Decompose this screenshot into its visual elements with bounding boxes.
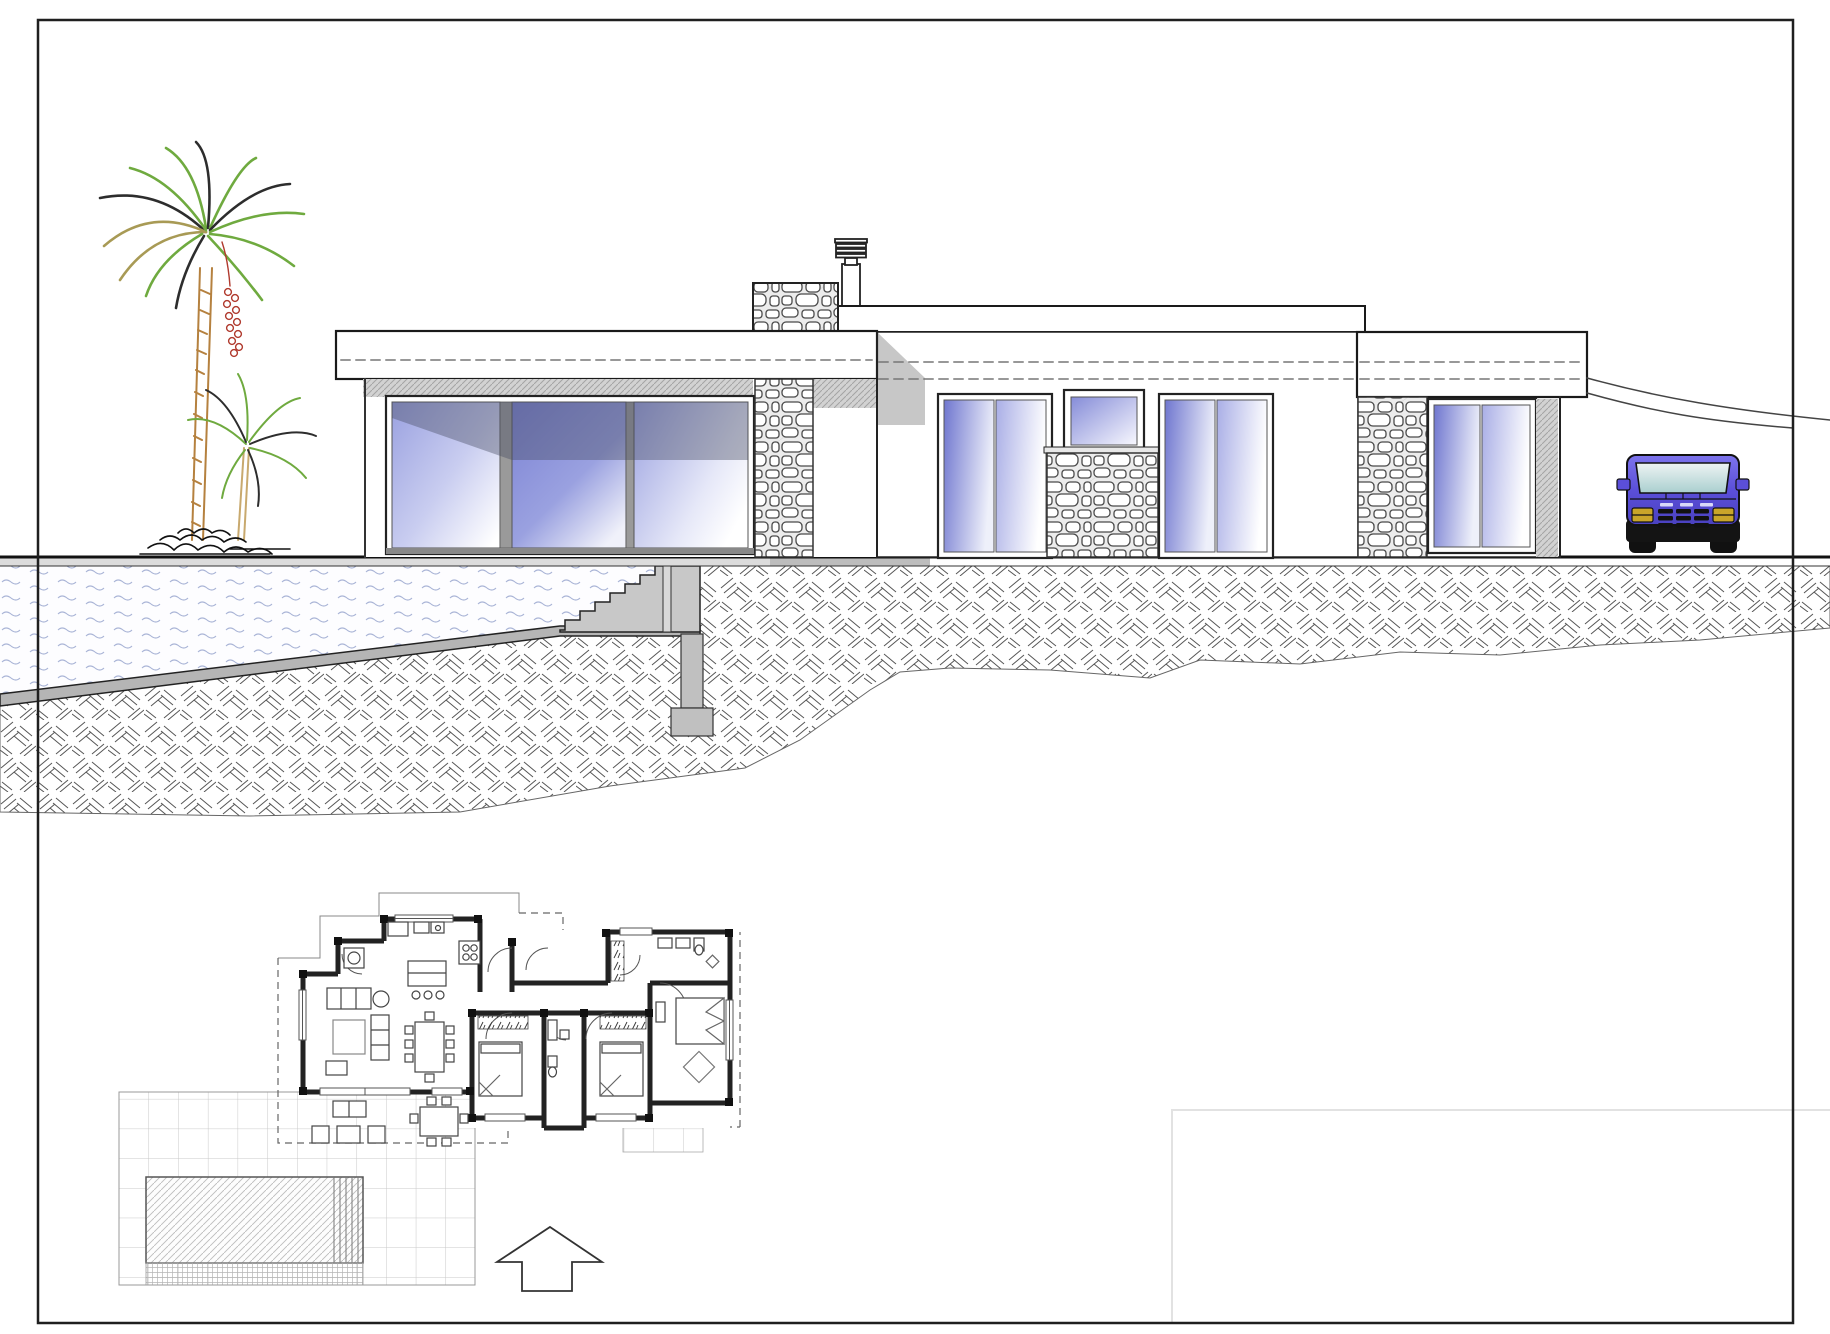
stone-parapet — [753, 283, 838, 332]
title-block-whiteout — [1172, 1110, 1830, 1323]
grille — [1658, 509, 1709, 528]
roof-shadow-band-right — [813, 379, 877, 408]
stone-infill-lintel — [1044, 447, 1161, 453]
floor-plan — [119, 893, 740, 1291]
palm-base-grass — [140, 529, 290, 554]
utility-fixture — [344, 948, 364, 968]
bedroom2-bed — [600, 1042, 643, 1096]
chimney-fins — [835, 239, 867, 258]
door-track — [386, 548, 754, 554]
central-roof-band — [838, 306, 1365, 332]
chimney — [835, 239, 867, 310]
chimney-body — [842, 264, 860, 310]
right-wing — [1357, 332, 1830, 557]
central-sliding-door-2 — [1159, 394, 1273, 558]
drawing-canvas — [0, 0, 1830, 1334]
pool-beach — [146, 1263, 363, 1285]
kitchen-window — [1064, 390, 1144, 452]
right-fascia-band — [1357, 332, 1587, 397]
drawing-sheet — [0, 0, 1830, 1334]
basement-wall — [663, 566, 671, 632]
house-elevation — [336, 239, 1830, 558]
left-stone-pillar — [755, 379, 813, 557]
pool-plan — [146, 1177, 363, 1263]
mirror-right — [1736, 479, 1749, 490]
kitchen-island — [408, 961, 446, 999]
central-sliding-door-1 — [938, 394, 1052, 558]
bedroom1-bed — [479, 1042, 522, 1096]
palm-trees — [100, 142, 316, 554]
tall-palm-trunk — [192, 268, 212, 540]
footing-column — [681, 634, 703, 708]
mirror-left — [1617, 479, 1630, 490]
palm-dates — [222, 242, 242, 356]
terrain-section — [0, 557, 1830, 816]
left-building — [336, 331, 877, 557]
terrain-curve-lower — [1587, 393, 1793, 428]
north-arrow — [497, 1227, 602, 1291]
left-fascia-band — [336, 331, 877, 379]
car — [1617, 455, 1749, 553]
stone-infill — [1047, 453, 1158, 557]
chimney-neck — [845, 258, 857, 265]
windshield — [1636, 463, 1730, 493]
terrace-slab-shadow — [770, 558, 930, 566]
roof-shadow-band — [363, 379, 753, 397]
right-wall-shadow — [1536, 399, 1558, 557]
entry-walkway — [623, 1126, 703, 1152]
hood-vents — [1660, 503, 1713, 507]
right-stone-pillar — [1358, 397, 1427, 557]
left-glass-wall — [386, 396, 754, 554]
footing-pad — [671, 708, 713, 736]
right-sliding-door — [1428, 399, 1536, 553]
tall-palm-crown — [100, 142, 304, 308]
